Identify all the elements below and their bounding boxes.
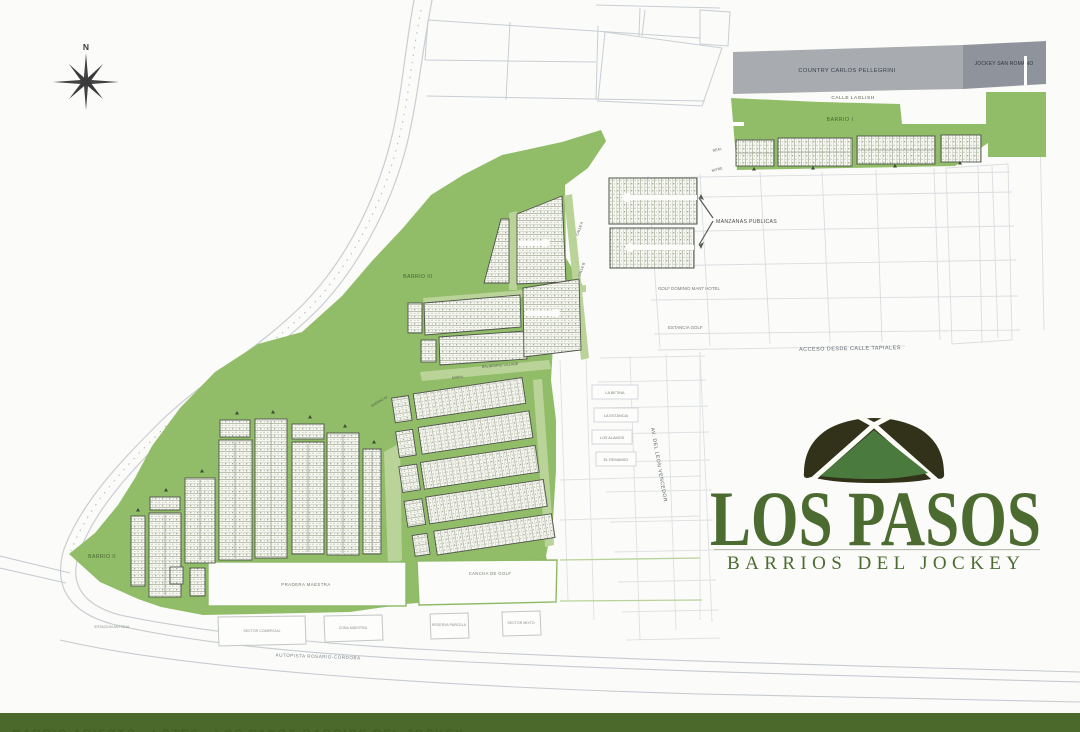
- svg-text:EL REMANSO: EL REMANSO: [604, 458, 629, 462]
- svg-text:ESTACION ANTIGUA: ESTACION ANTIGUA: [95, 625, 130, 629]
- svg-text:PRADERA MAESTRA: PRADERA MAESTRA: [281, 582, 330, 587]
- svg-text:SECTOR MIXTO: SECTOR MIXTO: [507, 621, 534, 625]
- svg-text:N: N: [83, 42, 89, 52]
- svg-text:BARRIO I: BARRIO I: [827, 117, 854, 123]
- svg-text:CANCHA DE GOLF: CANCHA DE GOLF: [469, 571, 512, 576]
- svg-text:LOS ALAMOS: LOS ALAMOS: [600, 436, 625, 440]
- svg-text:SECTOR COMERCIAL: SECTOR COMERCIAL: [243, 629, 280, 633]
- svg-text:LA BETINA: LA BETINA: [605, 391, 625, 395]
- svg-text:BARRIO III: BARRIO III: [403, 274, 433, 280]
- svg-text:RESERVA PARCELA: RESERVA PARCELA: [432, 623, 467, 627]
- svg-text:LA ESTANCIA: LA ESTANCIA: [604, 414, 629, 418]
- svg-text:BARRIO II: BARRIO II: [88, 554, 116, 560]
- svg-text:GOLF DOMINIO MANT HOTEL: GOLF DOMINIO MANT HOTEL: [658, 286, 720, 291]
- svg-text:LOS PASOS: LOS PASOS: [710, 475, 1041, 562]
- svg-text:MANZANAS PUBLICAS: MANZANAS PUBLICAS: [716, 219, 777, 225]
- svg-text:BARRIO ABIERTO · LOTES · LOS P: BARRIO ABIERTO · LOTES · LOS PASOS BARRI…: [12, 727, 464, 732]
- svg-text:ESTANCIA GOLF: ESTANCIA GOLF: [668, 325, 703, 330]
- svg-text:ZONA MAESTRA: ZONA MAESTRA: [339, 626, 368, 630]
- svg-text:COUNTRY CARLOS PELLEGRINI: COUNTRY CARLOS PELLEGRINI: [798, 68, 895, 74]
- svg-text:CALLE LAGLISH: CALLE LAGLISH: [831, 95, 874, 101]
